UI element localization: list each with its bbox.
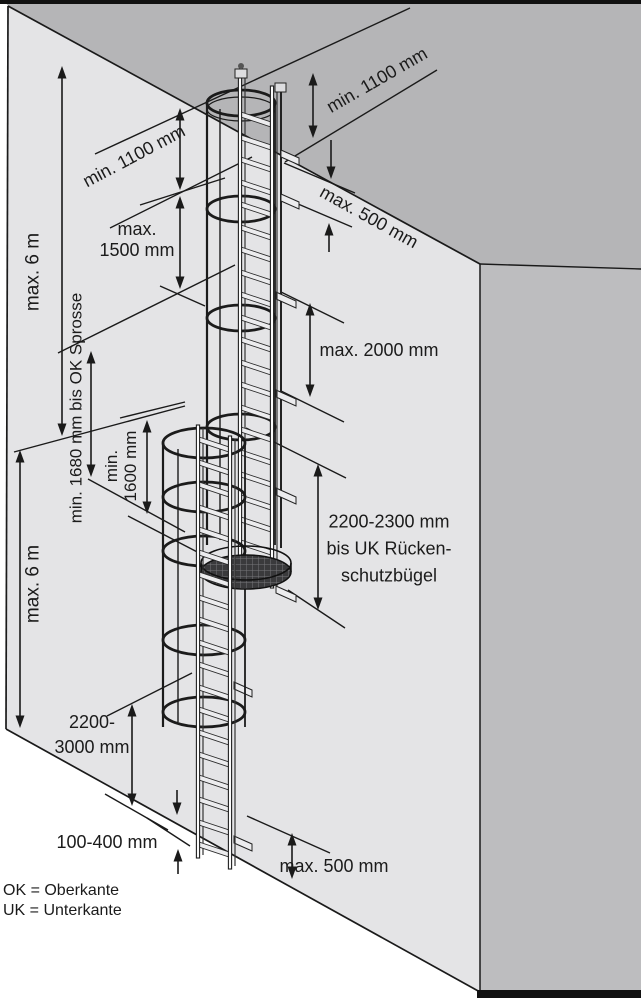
dim-label-100-400: 100-400 mm xyxy=(56,832,157,852)
dim-label-min-1600: min. 1600 mm xyxy=(102,431,140,502)
dim-label-2200-3000: 2200- 3000 mm xyxy=(54,710,129,760)
legend-ok: OK = Oberkante xyxy=(3,881,122,901)
top-border xyxy=(0,0,641,4)
dim-label-max-2000: max. 2000 mm xyxy=(319,340,438,360)
dim-label-max-1500: max. 1500 mm xyxy=(99,219,174,261)
stile-cap-left xyxy=(235,69,247,78)
legend-uk: UK = Unterkante xyxy=(3,901,122,921)
dim-label-max-500-bottom: max. 500 mm xyxy=(279,856,388,876)
side-wall xyxy=(480,264,641,992)
dim-label-max-6m-lower: max. 6 m xyxy=(22,545,43,623)
dim-label-max-6m-upper: max. 6 m xyxy=(22,233,43,311)
stile-cap-right xyxy=(275,83,286,92)
abbreviation-legend: OK = Oberkante UK = Unterkante xyxy=(3,881,122,921)
dim-label-2200-2300-rueckenschutz: 2200-2300 mm bis UK Rücken- schutzbügel xyxy=(326,509,451,590)
bottom-right-border xyxy=(477,990,641,998)
ladder-installation-diagram: max. 6 m max. 6 m min. 1100 mm min. 1680… xyxy=(0,0,641,1000)
dim-label-min-1680-bis-ok-sprosse: min. 1680 mm bis OK Sprosse xyxy=(66,293,85,524)
